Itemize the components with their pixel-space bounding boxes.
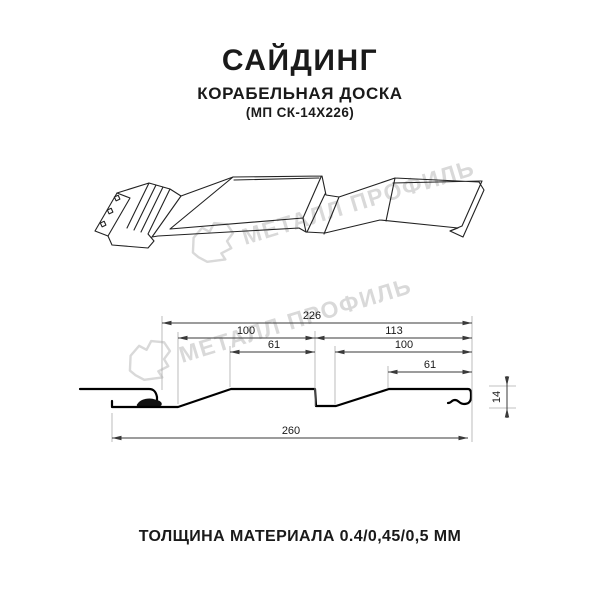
- dimension-board2-width: 113: [315, 325, 472, 338]
- watermark-text: МЕТАЛЛ ПРОФИЛЬ: [239, 154, 478, 250]
- panel-right-edge: [450, 181, 484, 237]
- dimension-board2-flat: 61: [388, 359, 472, 372]
- dimension-board2-inner-width: 100: [335, 339, 472, 352]
- dimension-overall-width: 260: [112, 425, 468, 438]
- dim-label-14: 14: [491, 391, 503, 403]
- dim-label-226: 226: [303, 310, 321, 322]
- lock-fold: [108, 183, 181, 248]
- technical-drawing: МЕТАЛЛ ПРОФИЛЬ МЕТАЛЛ ПРОФИЛЬ: [0, 0, 600, 600]
- dim-label-113: 113: [385, 325, 403, 337]
- dim-label-100-right: 100: [395, 339, 413, 351]
- dim-label-61-right: 61: [424, 359, 436, 371]
- metall-profil-logo: [186, 219, 239, 268]
- material-thickness-note: ТОЛЩИНА МАТЕРИАЛА 0.4/0,45/0,5 ММ: [0, 528, 600, 546]
- nail-holes: [100, 195, 120, 227]
- metall-profil-logo: [123, 337, 176, 386]
- dim-label-61-left: 61: [268, 339, 280, 351]
- extension-lines: [112, 316, 516, 442]
- dim-label-260: 260: [282, 425, 300, 437]
- nail-strip: [95, 193, 130, 236]
- watermark-perspective: МЕТАЛЛ ПРОФИЛЬ: [186, 146, 478, 268]
- section-profile-outline: [112, 389, 471, 407]
- dim-label-100-left: 100: [237, 325, 255, 337]
- dimension-profile-height: 14: [491, 376, 507, 418]
- watermark-section: МЕТАЛЛ ПРОФИЛЬ: [123, 264, 415, 386]
- cross-section-view: [80, 389, 471, 407]
- drawing-sheet: САЙДИНГ КОРАБЕЛЬНАЯ ДОСКА (МП СК-14Х226)…: [0, 0, 600, 600]
- dimension-cover-width: 226: [162, 310, 472, 323]
- watermark-text: МЕТАЛЛ ПРОФИЛЬ: [176, 272, 415, 368]
